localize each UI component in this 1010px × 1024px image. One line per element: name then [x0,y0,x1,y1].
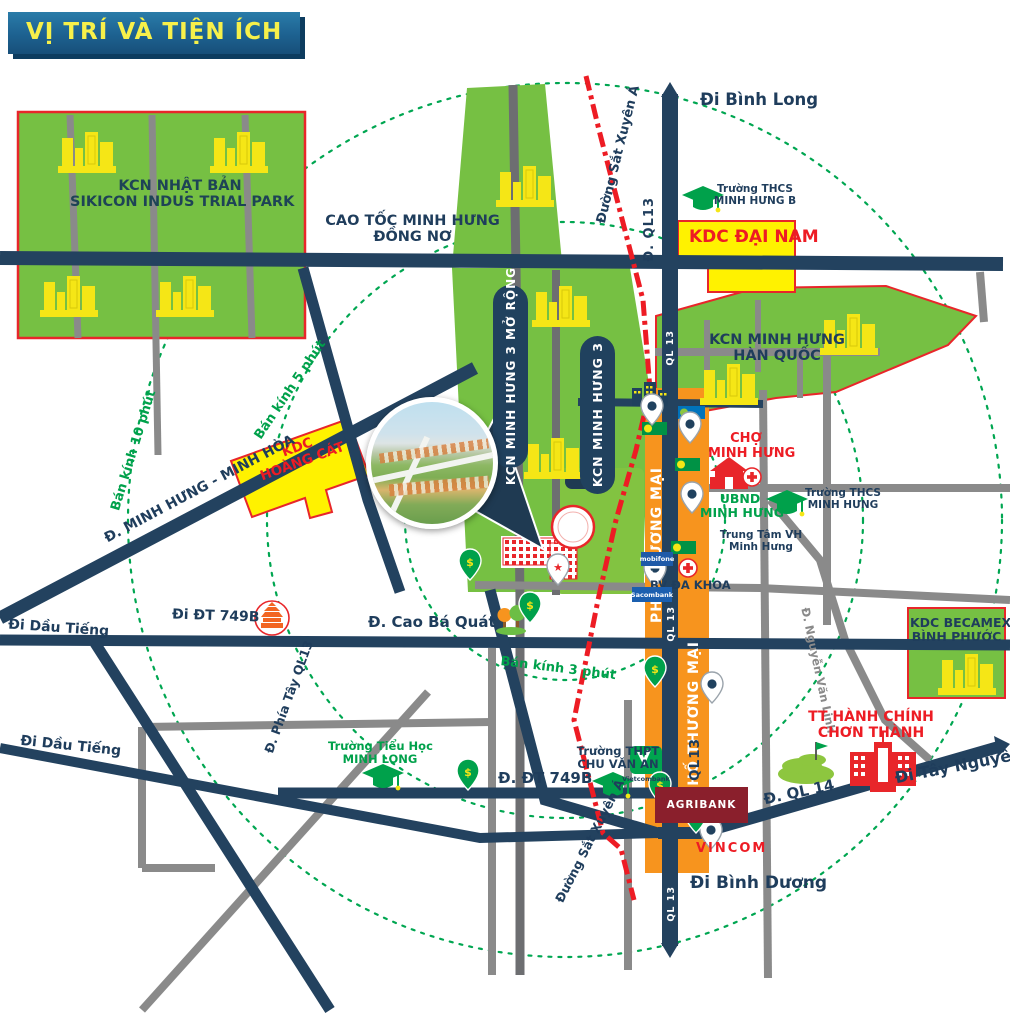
clinic-cross-icon [743,468,761,486]
tieu-hoc-minh-long-label: Trường Tiểu Học MINH LONG [328,740,432,766]
tt-hanh-chinh-label: TT HÀNH CHÍNH CHƠN THÀNH [805,710,937,741]
kcn-nhat-ban-label: KCN NHẬT BẢN SIKICON INDUS TRIAL PARK [70,178,290,210]
di-binh-duong-label: Đi Bình Dương [690,874,827,893]
sacombank-sign: Sacombank [632,587,672,602]
thcs-minh-hung-b-label: Trường THCS MINH HƯNG B [712,184,798,208]
ql13-road-label: QL 13 [663,602,679,646]
ql13-road-label: QL 13 [662,326,678,370]
di-dt-749b-label: Đi ĐT 749B [172,607,260,626]
market-icon [710,457,748,489]
ql13-road-label: QL 13 [663,882,679,926]
arrow-south-icon [661,943,679,958]
ubnd-minh-hung-label: UBND MINH HƯNG [700,492,780,520]
vietcombank-label: Vietcombank [621,776,671,783]
kcn-minh-hung-3-pill: KCN MINH HƯNG 3 [580,336,615,494]
d-ql13-label-top: Đ. QL13 [640,198,658,260]
kcn-mh3-label: KCN MINH HƯNG 3 [590,342,605,487]
location-amenities-map: $ ★ [0,0,1010,1024]
vincom-label: VINCOM [696,842,767,857]
page-title: VỊ TRÍ VÀ TIỆN ÍCH [26,19,282,45]
school-icon [362,764,404,790]
bank-pin-icon [457,759,479,790]
title-banner: VỊ TRÍ VÀ TIỆN ÍCH [8,12,300,54]
mobifone-sign: mobifone [641,552,673,566]
cao-toc-label: CAO TỐC MINH HƯNG ĐỒNG NƠ [325,213,500,245]
trung-tam-vh-label: Trung Tâm VH Minh Hưng [716,530,806,554]
kdc-becamex-label: KDC BECAMEX BÌNH PHƯỚC [910,616,1003,644]
arrow-north-icon [661,82,679,97]
agribank-sign: AGRIBANK [655,787,748,823]
store-sign-bhx-3 [671,541,696,554]
kcn-mh3mr-label: KCN MINH HƯNG 3 MỞ RỘNG [504,267,518,485]
cho-minh-hung-label: CHỢ MINH HƯNG [708,432,784,461]
project-callout-image [366,397,498,529]
pagoda-icon [255,601,289,635]
kcn-minh-hung-3-mo-rong-pill: KCN MINH HƯNG 3 MỞ RỘNG [493,285,528,468]
project-roundabout-ring [558,512,588,542]
thpt-chu-van-an-label: Trường THPT CHU VĂN AN [570,745,666,771]
kdc-dai-nam-label: KDC ĐẠI NAM [689,228,819,247]
d-dt-749b-label: Đ. ĐT 749B [498,770,592,787]
hospital-cross-icon [679,559,697,577]
store-sign-bhx-2 [675,458,700,471]
thcs-minh-hung-label: Trường THCS MINH HƯNG [800,488,886,512]
store-sign-bhx-1 [642,422,667,435]
di-binh-long-label: Đi Bình Long [700,91,818,109]
cao-ba-quat-label: Đ. Cao Bá Quát [368,614,496,631]
kcn-han-quoc-label: KCN MINH HƯNG HÀN QUỐC [702,332,852,364]
